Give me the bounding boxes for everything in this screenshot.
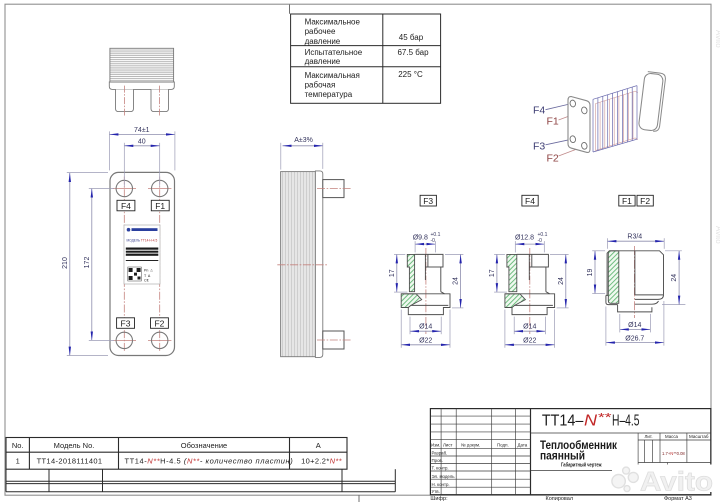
svg-text:45 бар: 45 бар [399,33,424,42]
svg-text:A: A [316,441,321,450]
svg-text:R3/4: R3/4 [627,233,642,240]
svg-text:Avito: Avito [640,467,713,497]
svg-text:F3: F3 [533,140,545,152]
svg-text:-0: -0 [538,238,543,244]
svg-text:-0: -0 [431,238,436,244]
svg-text:24: 24 [453,277,460,285]
svg-text:Подп.: Подп. [497,442,509,447]
svg-text:Т. контр.: Т. контр. [432,466,449,471]
svg-text:Ø26.7: Ø26.7 [625,335,644,342]
svg-text:Ø22: Ø22 [523,337,536,344]
svg-text:Лит.: Лит. [645,434,653,439]
svg-text:Модель No.: Модель No. [54,441,95,450]
svg-text:No.: No. [12,441,24,450]
svg-text:Ø12.8: Ø12.8 [515,235,534,242]
svg-text:Ø14: Ø14 [419,324,432,331]
svg-text:ТТ14-N**Н-4.5 (N**- количеств: ТТ14-N**Н-4.5 (N**- количество пластин) [125,457,294,466]
svg-text:F4: F4 [533,105,545,117]
svg-text:Обозначение: Обозначение [181,441,227,450]
svg-text:F4: F4 [121,201,131,211]
svg-text:Avito: Avito [714,30,720,48]
svg-text:Ø22: Ø22 [419,337,432,344]
svg-text:F3: F3 [121,318,131,328]
svg-text:Ø9.8: Ø9.8 [413,235,428,242]
svg-text:210: 210 [62,257,69,269]
svg-text:F1: F1 [547,115,559,127]
svg-text:F2: F2 [640,196,650,206]
svg-text:паянный: паянный [540,448,585,462]
svg-text:Ø14: Ø14 [628,322,641,329]
svg-text:1.7+N**0.08: 1.7+N**0.08 [662,451,685,456]
svg-text:Копировал: Копировал [546,496,574,502]
svg-text:Изм.: Изм. [431,442,440,447]
svg-text:F4: F4 [525,196,535,206]
svg-text:19: 19 [587,269,594,277]
svg-text:F2: F2 [154,318,164,328]
svg-text:17: 17 [489,269,496,277]
svg-text:Дата: Дата [518,442,528,447]
svg-text:Ø14: Ø14 [523,324,536,331]
svg-text:172: 172 [84,257,91,269]
svg-text:TT14-2018111401: TT14-2018111401 [37,457,103,466]
svg-text:№ докум.: № докум. [461,442,480,447]
svg-text:Масштаб: Масштаб [689,434,709,439]
svg-text:74±1: 74±1 [134,127,150,134]
svg-text:225 °C: 225 °C [398,70,423,79]
svg-text:Шифр:: Шифр: [430,496,448,502]
svg-text:Утв.: Утв. [432,489,440,494]
svg-text:1: 1 [16,457,20,466]
svg-text:10+2.2*N**: 10+2.2*N** [301,457,343,466]
svg-text:**: ** [598,411,612,425]
svg-text:C€: C€ [144,279,149,283]
svg-text:N: N [584,412,597,429]
svg-text:F1: F1 [155,201,165,211]
svg-text:Н. контр.: Н. контр. [432,482,450,487]
svg-text:МОДЕЛЬ ТТ14-Н-4.5: МОДЕЛЬ ТТ14-Н-4.5 [127,239,158,243]
svg-text:Pn: Pn [144,269,148,273]
svg-text:24: 24 [671,274,678,282]
svg-text:17: 17 [389,269,396,277]
svg-text:Разраб.: Разраб. [432,451,448,456]
svg-text:Эл. модель: Эл. модель [432,474,456,479]
svg-text:F2: F2 [547,152,559,164]
svg-text:Avito: Avito [714,226,720,244]
svg-text:F1: F1 [622,196,632,206]
svg-text:Масса: Масса [665,434,679,439]
svg-text:Н–4.5: Н–4.5 [612,412,640,429]
svg-text:Лист: Лист [443,442,453,447]
svg-text:67.5 бар: 67.5 бар [397,48,429,57]
svg-text:F3: F3 [423,196,433,206]
svg-text:A±3%: A±3% [294,137,313,144]
svg-text:Габаритный чертеж: Габаритный чертеж [561,462,602,469]
svg-text:Формат А3: Формат А3 [664,496,692,502]
svg-text:40: 40 [138,139,146,146]
svg-text:ТТ14–: ТТ14– [542,412,584,429]
svg-text:24: 24 [558,277,565,285]
svg-text:Пров.: Пров. [432,458,444,463]
